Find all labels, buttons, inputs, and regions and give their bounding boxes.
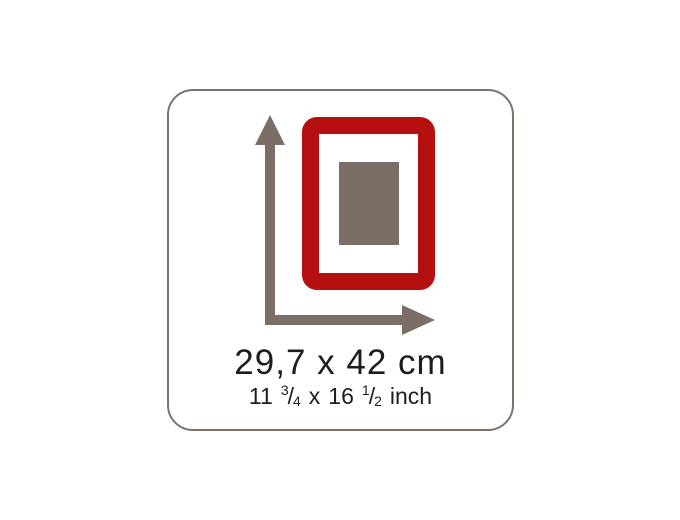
imperial-unit: inch: [390, 383, 432, 409]
imperial-dimensions-label: 113/4x161/2inch: [169, 383, 512, 412]
imperial-multiplier: x: [309, 383, 321, 409]
fraction-denominator: 2: [374, 393, 382, 409]
metric-dimensions-label: 29,7 x 42 cm: [169, 344, 512, 381]
dimension-info-card: 29,7 x 42 cm 113/4x161/2inch: [167, 89, 514, 431]
product-image-canvas: 29,7 x 42 cm 113/4x161/2inch: [0, 0, 680, 520]
height-arrowhead-icon: [255, 115, 285, 145]
frame-photo-area: [339, 162, 399, 245]
fraction-denominator: 4: [293, 393, 301, 409]
height-arrow-shaft: [265, 143, 275, 325]
width-arrow-shaft: [265, 315, 402, 325]
imperial-second-fraction: 1/2: [362, 383, 382, 412]
imperial-first-number: 11: [249, 383, 273, 409]
imperial-second-number: 16: [328, 383, 354, 409]
imperial-first-fraction: 3/4: [281, 383, 301, 412]
width-arrowhead-icon: [402, 305, 435, 335]
fraction-numerator: 3: [281, 382, 289, 398]
fraction-numerator: 1: [362, 382, 370, 398]
